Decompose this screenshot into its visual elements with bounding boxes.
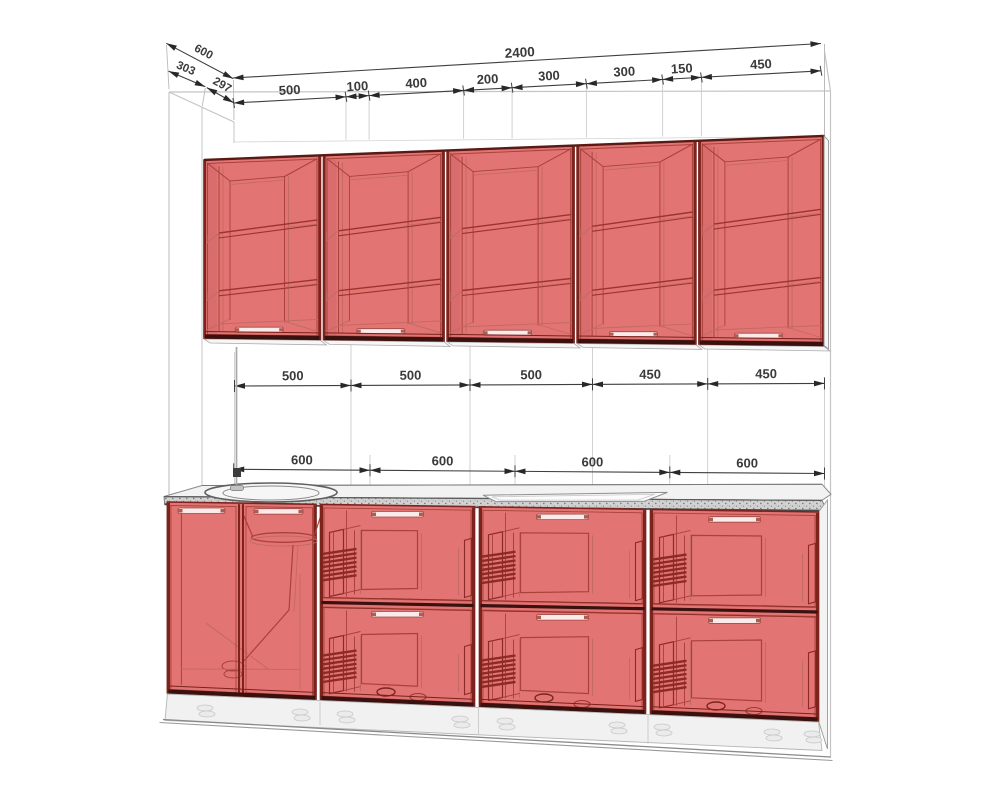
svg-text:500: 500 — [278, 82, 300, 98]
svg-text:450: 450 — [639, 367, 661, 382]
svg-text:400: 400 — [405, 75, 427, 91]
svg-text:600: 600 — [432, 453, 454, 468]
svg-text:300: 300 — [613, 64, 635, 80]
svg-text:500: 500 — [400, 368, 422, 383]
svg-text:300: 300 — [538, 68, 560, 84]
svg-text:600: 600 — [736, 455, 758, 470]
svg-text:600: 600 — [582, 454, 604, 469]
svg-text:500: 500 — [282, 368, 304, 383]
svg-text:100: 100 — [346, 78, 368, 94]
svg-text:2400: 2400 — [504, 44, 535, 61]
svg-text:200: 200 — [476, 71, 498, 87]
svg-text:450: 450 — [755, 366, 777, 381]
svg-text:450: 450 — [750, 56, 772, 72]
svg-text:600: 600 — [291, 452, 313, 467]
svg-text:150: 150 — [671, 60, 693, 76]
svg-text:500: 500 — [520, 367, 542, 382]
